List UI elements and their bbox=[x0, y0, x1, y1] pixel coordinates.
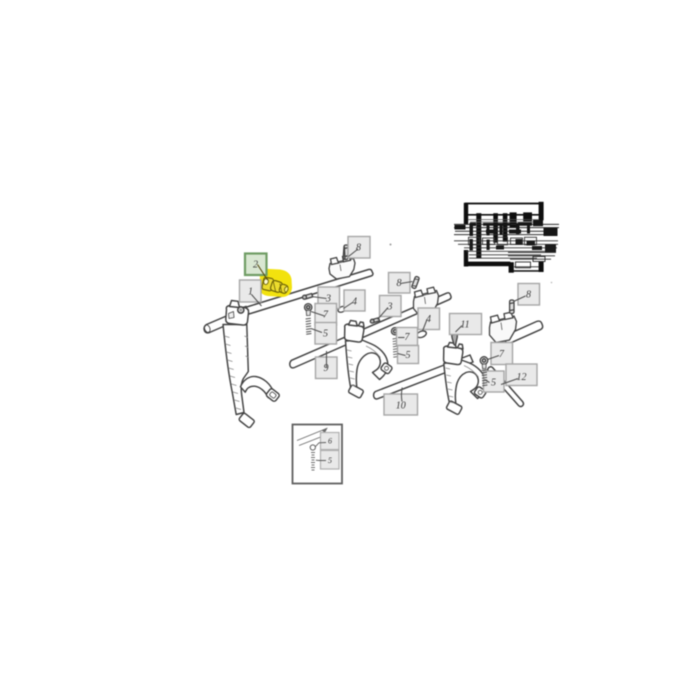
svg-text:3: 3 bbox=[325, 294, 331, 305]
svg-text:3: 3 bbox=[387, 302, 393, 313]
svg-text:6: 6 bbox=[328, 437, 332, 446]
svg-text:5: 5 bbox=[323, 329, 328, 340]
svg-text:5: 5 bbox=[406, 350, 411, 361]
svg-text:4: 4 bbox=[352, 297, 357, 308]
svg-text:11: 11 bbox=[460, 320, 469, 331]
svg-text:8: 8 bbox=[526, 290, 531, 301]
svg-text:12: 12 bbox=[517, 372, 527, 383]
svg-text:8: 8 bbox=[356, 243, 361, 254]
svg-text:10: 10 bbox=[396, 400, 406, 411]
svg-text:5: 5 bbox=[328, 456, 332, 465]
svg-text:5: 5 bbox=[491, 378, 496, 389]
